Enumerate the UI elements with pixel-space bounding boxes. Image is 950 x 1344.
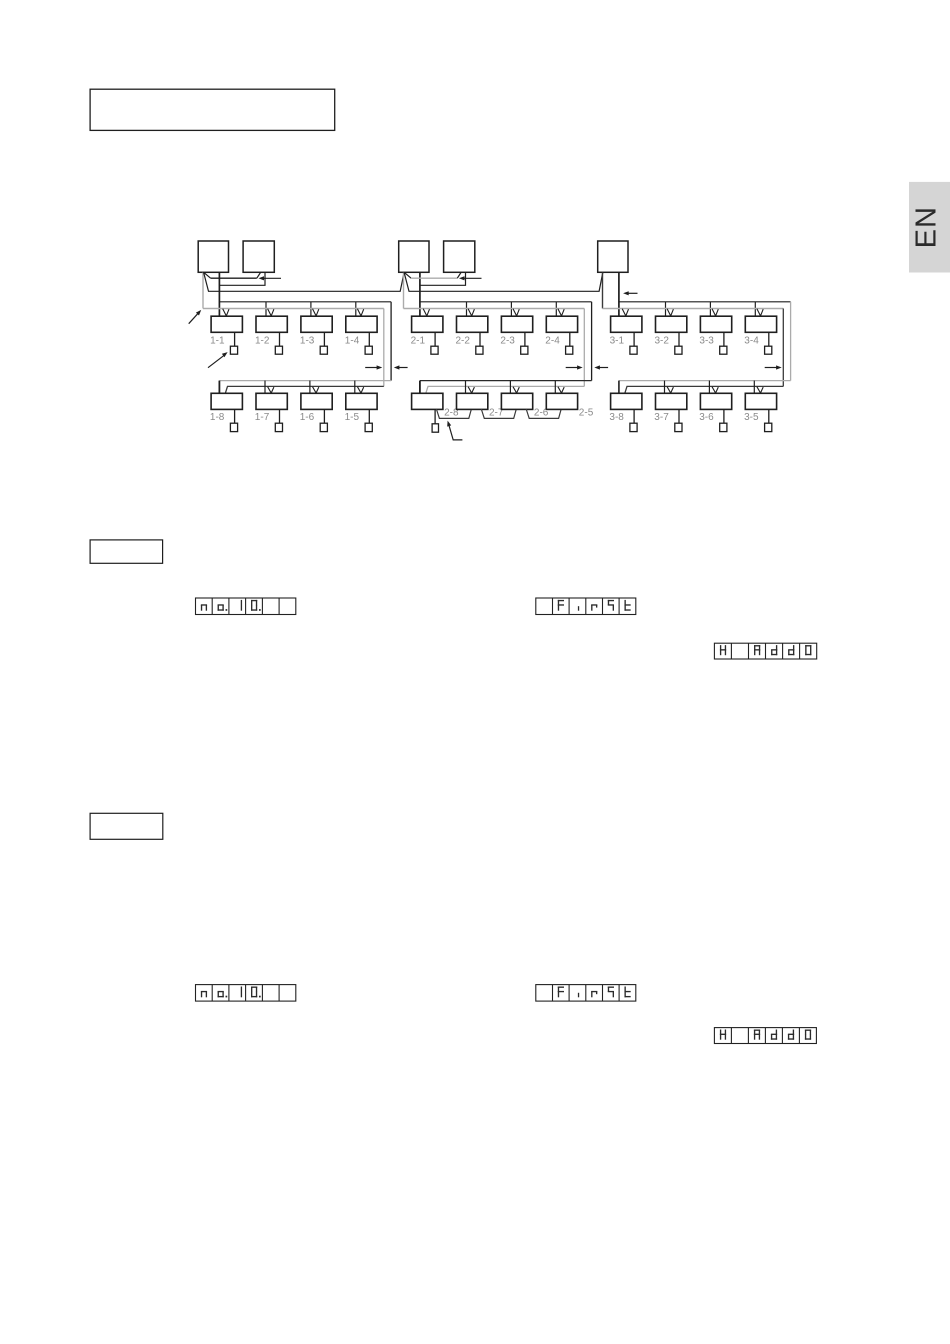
svg-text:3-4: 3-4 — [744, 335, 759, 346]
svg-text:3-5: 3-5 — [744, 412, 759, 423]
svg-text:3-8: 3-8 — [609, 412, 624, 423]
svg-text:2-5: 2-5 — [579, 408, 594, 419]
svg-text:3-1: 3-1 — [610, 335, 625, 346]
svg-text:2-1: 2-1 — [411, 335, 426, 346]
svg-text:1-1: 1-1 — [210, 335, 225, 346]
svg-text:2-4: 2-4 — [545, 335, 560, 346]
svg-text:1-7: 1-7 — [255, 412, 270, 423]
svg-text:3-7: 3-7 — [654, 412, 669, 423]
svg-text:3-6: 3-6 — [699, 412, 714, 423]
svg-text:1-8: 1-8 — [210, 412, 225, 423]
svg-text:3-3: 3-3 — [699, 335, 714, 346]
svg-text:1-2: 1-2 — [255, 335, 270, 346]
svg-text:2-3: 2-3 — [500, 335, 515, 346]
svg-text:3-2: 3-2 — [655, 335, 670, 346]
svg-text:1-6: 1-6 — [300, 412, 315, 423]
svg-text:2-2: 2-2 — [456, 335, 471, 346]
svg-text:EN: EN — [911, 206, 943, 248]
svg-text:1-5: 1-5 — [345, 412, 360, 423]
svg-text:1-4: 1-4 — [345, 335, 360, 346]
svg-text:1-3: 1-3 — [300, 335, 315, 346]
